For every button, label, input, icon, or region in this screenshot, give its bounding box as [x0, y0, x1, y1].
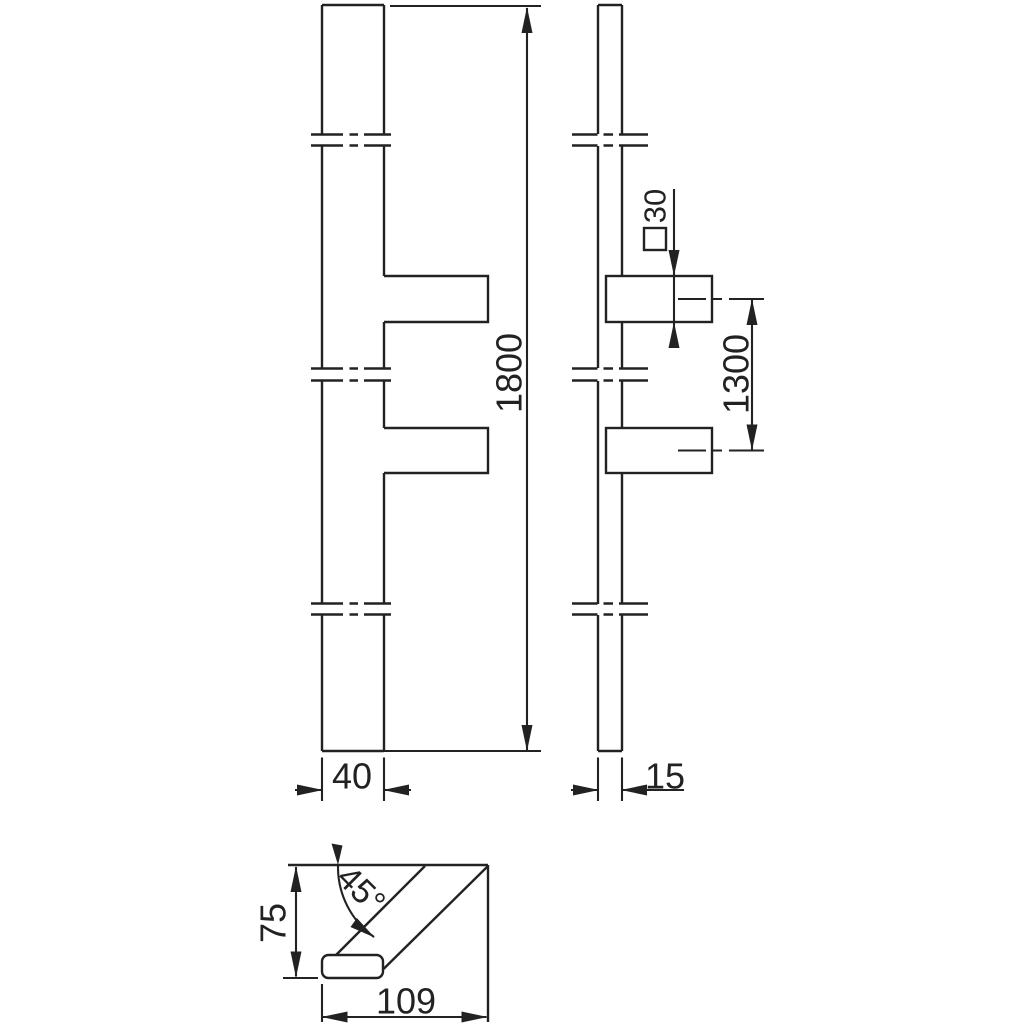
- dim-1300-label: 1300: [716, 334, 757, 414]
- dim-40-label: 40: [332, 756, 372, 797]
- technical-drawing: 1800 40 15 30 1300 45°: [0, 0, 1024, 1024]
- grip-cross-section: [322, 955, 383, 978]
- dim-75-label: 75: [253, 903, 294, 943]
- dim-109-label: 109: [376, 981, 436, 1022]
- canvas-background: [0, 0, 1024, 1024]
- dim-1800-label: 1800: [489, 333, 530, 413]
- dim-15-label: 15: [645, 756, 685, 797]
- dim-30-label: 30: [638, 189, 673, 223]
